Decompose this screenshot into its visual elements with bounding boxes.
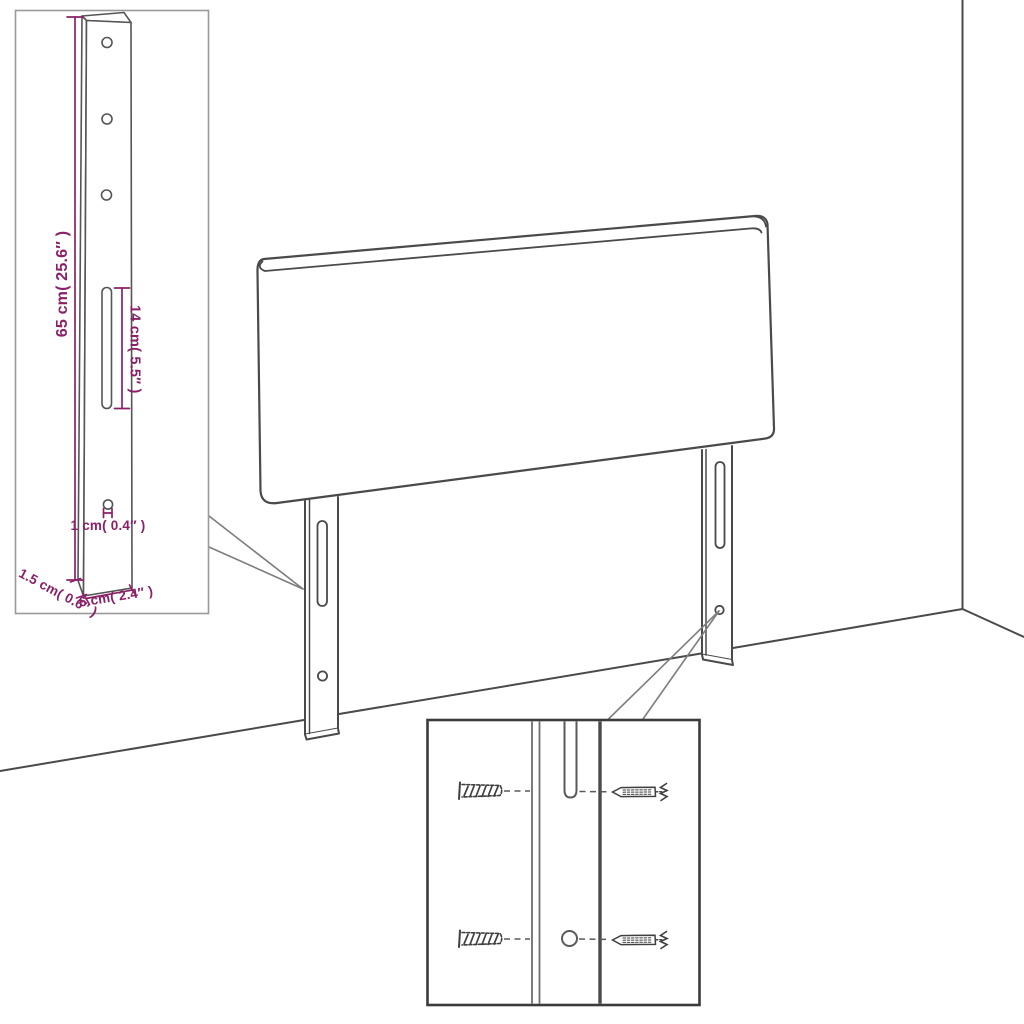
dim-height-label: 65 cm( 25.6″ ) bbox=[55, 214, 71, 354]
right-leg bbox=[702, 446, 733, 665]
diagram-canvas: 65 cm( 25.6″ ) 14 cm( 5.5″ ) 1 cm( 0.4″ … bbox=[0, 0, 1024, 1024]
callout-lines bbox=[209, 516, 719, 719]
detail-inset-fixings bbox=[428, 720, 700, 1005]
bracket-side-view bbox=[78, 13, 132, 597]
dim-hole-diameter-label: 1 cm( 0.4″ ) bbox=[48, 519, 168, 533]
line-art bbox=[0, 0, 1024, 1024]
dim-slot-length-label: 14 cm( 5.5″ ) bbox=[127, 291, 142, 407]
floor-line-right bbox=[963, 609, 1024, 637]
leader-to-detail-box bbox=[609, 611, 720, 719]
left-leg bbox=[305, 497, 339, 740]
floor-line bbox=[339, 654, 701, 715]
floor-line bbox=[0, 720, 304, 771]
headboard-panel bbox=[257, 216, 774, 503]
leader-to-detail-box bbox=[643, 611, 719, 719]
floor-line bbox=[733, 609, 963, 648]
headboard-outline bbox=[257, 216, 774, 503]
hole-magnified bbox=[562, 931, 577, 946]
